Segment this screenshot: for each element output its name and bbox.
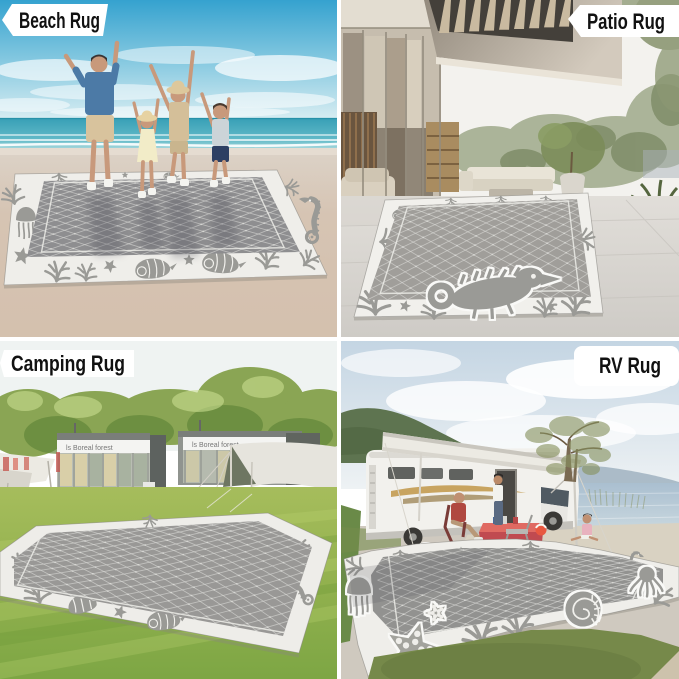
svg-text:Beach Rug: Beach Rug: [19, 8, 100, 33]
svg-text:RV Rug: RV Rug: [599, 353, 661, 378]
svg-text:ls Boreal forest: ls Boreal forest: [66, 445, 113, 452]
svg-text:Patio Rug: Patio Rug: [587, 9, 665, 34]
svg-text:Camping Rug: Camping Rug: [11, 351, 125, 376]
